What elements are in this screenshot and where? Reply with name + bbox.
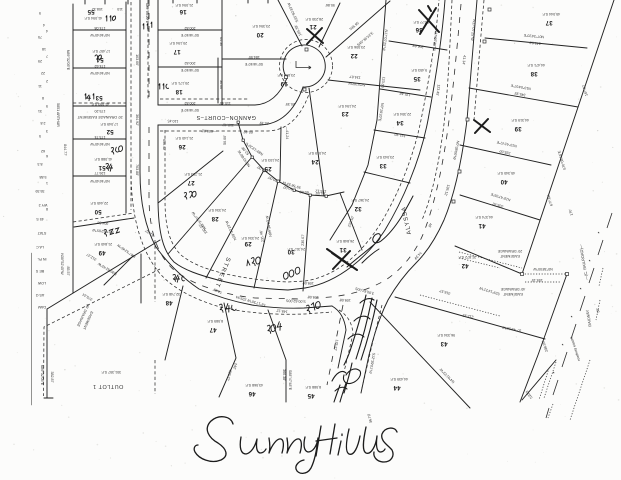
svg-text:S7°45'16"W: S7°45'16"W (501, 325, 521, 332)
svg-text:21,094 S.F.: 21,094 S.F. (175, 3, 193, 7)
svg-text:N0°46'40"W: N0°46'40"W (90, 71, 110, 75)
svg-text:N0°46'40"W: N0°46'40"W (90, 142, 110, 146)
svg-text:110.45: 110.45 (167, 119, 178, 124)
svg-text:5851 ARTHUR: 5851 ARTHUR (56, 103, 60, 127)
svg-text:170': 170' (568, 208, 574, 216)
svg-text:20' DRAINAGE: 20' DRAINAGE (497, 249, 522, 253)
svg-text:N30°52'45"W: N30°52'45"W (97, 261, 118, 276)
svg-text:N10°04'07"E: N10°04'07"E (510, 83, 531, 91)
svg-text:2.8: 2.8 (41, 121, 46, 125)
svg-text:LOW: LOW (37, 281, 46, 285)
svg-text:9: 9 (46, 104, 48, 108)
svg-text:335.92': 335.92' (491, 201, 504, 208)
svg-text:ALYSSA: ALYSSA (401, 205, 413, 235)
svg-text:5: 5 (39, 134, 41, 138)
svg-text:110.46': 110.46' (219, 101, 231, 105)
svg-text:5.88: 5.88 (40, 175, 47, 179)
svg-text:41,088 S.F.: 41,088 S.F. (94, 157, 112, 161)
svg-text:S0°46'40"E: S0°46'40"E (180, 108, 199, 112)
svg-text:—41,24: —41,24 (285, 127, 289, 140)
svg-text:21: 21 (309, 23, 317, 29)
svg-text:20,171 S.F.: 20,171 S.F. (171, 81, 189, 85)
svg-text:N10°47'05"E: N10°47'05"E (490, 192, 511, 202)
svg-text:85.57: 85.57 (66, 267, 70, 276)
svg-text:31: 31 (339, 246, 347, 252)
svg-text:200.82: 200.82 (185, 26, 196, 30)
svg-text:22: 22 (350, 52, 358, 58)
svg-text:360.38': 360.38' (282, 369, 286, 381)
svg-text:41: 41 (478, 222, 486, 228)
svg-text:24,334 S.F.: 24,334 S.F. (208, 208, 226, 212)
svg-text:S0°46'40"E: S0°46'40"E (180, 68, 199, 72)
svg-text:74.39': 74.39' (413, 251, 422, 261)
svg-text:17,457 S.F.: 17,457 S.F. (92, 49, 110, 53)
svg-text:27: 27 (187, 179, 195, 185)
svg-text:LA C: LA C (36, 245, 44, 249)
svg-text:EASEMENT: EASEMENT (499, 254, 520, 258)
svg-text:345.35': 345.35' (513, 91, 526, 97)
svg-text:108.32': 108.32' (91, 7, 103, 11)
svg-text:S29°14'21"W: S29°14'21"W (478, 286, 500, 296)
svg-text:24: 24 (311, 158, 319, 164)
svg-text:50.00': 50.00' (223, 135, 227, 145)
svg-text:58': 58' (595, 307, 600, 313)
svg-text:208.95': 208.95' (541, 340, 549, 353)
svg-text:39: 39 (514, 125, 522, 131)
svg-text:20,194 S.F.: 20,194 S.F. (169, 41, 187, 45)
svg-text:364.92': 364.92' (135, 114, 139, 126)
svg-text:33: 33 (379, 162, 387, 168)
svg-text:41.14': 41.14' (461, 55, 466, 65)
svg-text:52: 52 (106, 128, 114, 134)
svg-text:—(C. RAILROAD)—: —(C. RAILROAD)— (578, 244, 589, 281)
svg-text:24,334 S.F.: 24,334 S.F. (241, 236, 259, 240)
svg-text:105.39': 105.39' (294, 24, 303, 37)
svg-text:20: 20 (256, 31, 264, 37)
svg-text:382.87: 382.87 (50, 372, 54, 383)
svg-text:20.39': 20.39' (259, 121, 269, 126)
svg-text:53°17'30"W 229.94: 53°17'30"W 229.94 (235, 295, 266, 307)
svg-text:74.39': 74.39' (212, 287, 223, 295)
svg-text:60.46': 60.46' (243, 130, 253, 135)
svg-text:677.61': 677.61' (546, 194, 553, 207)
svg-text:24,019 S.F.: 24,019 S.F. (308, 151, 326, 155)
svg-text:126.77: 126.77 (95, 171, 106, 175)
svg-text:IN PL: IN PL (38, 257, 47, 261)
svg-text:N89°32'05"E: N89°32'05"E (40, 365, 44, 386)
svg-text:RAILWAY: RAILWAY (585, 309, 593, 327)
svg-text:GANNON–COURT–S: GANNON–COURT–S (196, 114, 256, 120)
svg-text:9: 9 (39, 11, 41, 15)
svg-text:230.07': 230.07' (301, 234, 305, 246)
svg-text:173.74: 173.74 (95, 135, 106, 139)
svg-text:42: 42 (461, 262, 469, 268)
svg-text:36.00': 36.00' (219, 80, 223, 90)
svg-text:45,044 S.F.: 45,044 S.F. (542, 12, 560, 16)
svg-text:43: 43 (440, 340, 448, 346)
svg-text:60.00': 60.00' (299, 190, 309, 195)
svg-text:24,317 S.F.: 24,317 S.F. (287, 247, 305, 251)
svg-text:379.24: 379.24 (82, 292, 93, 301)
svg-text:—110.46': —110.46' (222, 123, 238, 128)
svg-text:32: 32 (354, 205, 362, 211)
svg-text:45 S: 45 S (36, 217, 44, 221)
svg-text:24,194 S.F.: 24,194 S.F. (338, 104, 356, 108)
svg-text:1: 1 (46, 181, 48, 185)
svg-text:29: 29 (38, 59, 42, 63)
svg-text:N07°34'20"E: N07°34'20"E (523, 33, 544, 39)
svg-text:N4°01'23"W: N4°01'23"W (439, 367, 456, 384)
svg-text:49: 49 (98, 249, 106, 255)
svg-text:51: 51 (98, 164, 106, 170)
svg-text:9,453 S.F.: 9,453 S.F. (411, 68, 427, 72)
svg-text:N0°46'40"W: N0°46'40"W (90, 33, 110, 37)
svg-text:20' DRAINAGE EASEMENT: 20' DRAINAGE EASEMENT (77, 115, 123, 119)
svg-text:24,367 S.F.: 24,367 S.F. (351, 198, 369, 202)
svg-text:7: 7 (46, 54, 48, 58)
svg-text:343.91': 343.91' (529, 40, 541, 45)
svg-text:41,093 S.F.: 41,093 S.F. (91, 102, 109, 106)
svg-text:35: 35 (413, 75, 421, 81)
svg-text:BE S: BE S (35, 269, 44, 273)
svg-text:545.95: 545.95 (349, 21, 360, 31)
svg-text:123.45': 123.45' (435, 84, 440, 96)
svg-text:N30°52'45"W: N30°52'45"W (60, 253, 64, 275)
svg-text:N17°07'25"W: N17°07'25"W (470, 19, 476, 41)
svg-text:8.3: 8.3 (38, 162, 43, 166)
svg-text:174.08: 174.08 (95, 26, 106, 30)
svg-text:AS G: AS G (36, 293, 45, 297)
svg-text:21,140 S.F.: 21,140 S.F. (175, 136, 193, 140)
svg-text:26: 26 (178, 143, 186, 149)
svg-text:103.00': 103.00' (135, 54, 139, 66)
svg-text:EASEMENT: EASEMENT (502, 292, 523, 296)
svg-text:OUTLOT 1: OUTLOT 1 (93, 383, 124, 389)
svg-text:136.12': 136.12' (443, 184, 450, 197)
svg-text:38: 38 (530, 70, 538, 76)
svg-text:200.82: 200.82 (185, 101, 196, 105)
svg-text:N89°13'20"E: N89°13'20"E (145, 3, 149, 24)
svg-text:—600.82': —600.82' (201, 129, 217, 134)
svg-text:46: 46 (248, 390, 256, 396)
svg-text:28: 28 (211, 215, 219, 221)
svg-text:175.20: 175.20 (95, 109, 106, 113)
svg-text:N0°38'00"W: N0°38'00"W (452, 140, 460, 160)
svg-text:433.27': 433.27' (225, 369, 232, 382)
svg-text:S70°08'15"E: S70°08'15"E (557, 149, 567, 170)
svg-text:75: 75 (38, 35, 42, 39)
svg-text:N10°41'47"E: N10°41'47"E (496, 140, 517, 148)
svg-text:50: 50 (94, 208, 102, 214)
svg-text:20.39': 20.39' (285, 102, 295, 106)
svg-text:4: 4 (46, 29, 48, 33)
svg-text:304.58: 304.58 (97, 220, 108, 225)
svg-text:26,848 S.F.: 26,848 S.F. (336, 239, 354, 243)
svg-text:151.30': 151.30' (393, 132, 406, 138)
svg-text:STAT: STAT (37, 231, 46, 235)
svg-text:18: 18 (175, 88, 183, 94)
svg-text:roadway easem.: roadway easem. (569, 335, 581, 361)
svg-text:109.08': 109.08' (339, 298, 351, 303)
svg-text:110: 110 (117, 7, 123, 11)
svg-text:200.82: 200.82 (185, 61, 196, 65)
svg-text:40: 40 (500, 178, 508, 184)
svg-text:N89°32'05"E: N89°32'05"E (66, 50, 70, 71)
svg-text:312.27: 312.27 (86, 252, 97, 261)
svg-text:109.08': 109.08' (307, 295, 319, 300)
svg-text:134.87': 134.87' (349, 74, 361, 79)
svg-text:45: 45 (307, 392, 315, 398)
svg-text:N47°52'45"W: N47°52'45"W (116, 243, 136, 259)
svg-text:44,471 S.F.: 44,471 S.F. (527, 63, 545, 67)
svg-text:60.00': 60.00' (315, 191, 325, 195)
svg-text:44,439 S.F.: 44,439 S.F. (390, 377, 408, 381)
svg-text:8: 8 (42, 96, 44, 100)
svg-text:47: 47 (209, 326, 217, 332)
svg-text:232.10': 232.10' (347, 215, 355, 228)
svg-text:N0°38'00"W: N0°38'00"W (533, 267, 553, 271)
svg-text:184.50': 184.50' (248, 55, 260, 59)
svg-text:844.77': 844.77' (63, 144, 67, 156)
svg-text:45,340 S.F.: 45,340 S.F. (497, 171, 515, 175)
svg-text:S88°47'48"E: S88°47'48"E (288, 370, 292, 391)
svg-text:8,588 S.F.: 8,588 S.F. (305, 385, 321, 389)
svg-text:34: 34 (396, 119, 404, 125)
svg-text:90.86': 90.86' (325, 3, 335, 7)
svg-text:242': 242' (232, 363, 238, 371)
svg-text:S40°36'33"E: S40°36'33"E (356, 31, 374, 47)
svg-text:44,374 S.F.: 44,374 S.F. (475, 215, 493, 219)
svg-text:46': 46' (427, 222, 432, 228)
svg-text:22,304 S.F.: 22,304 S.F. (393, 112, 411, 116)
svg-text:132.27': 132.27' (333, 339, 339, 352)
svg-text:21,793 S.F.: 21,793 S.F. (184, 172, 202, 176)
svg-text:3: 3 (46, 129, 48, 133)
svg-text:36.79': 36.79' (367, 413, 373, 424)
svg-text:44: 44 (393, 384, 401, 390)
svg-text:23,006 S.F.: 23,006 S.F. (347, 45, 365, 49)
svg-text:N0°46'40"W: N0°46'40"W (90, 179, 110, 183)
svg-text:109.09': 109.09' (302, 281, 314, 286)
svg-text:S0°46'40"E: S0°46'40"E (180, 33, 199, 37)
svg-text:41,094 S.F.: 41,094 S.F. (84, 16, 102, 20)
svg-text:96,334 S.F.: 96,334 S.F. (437, 333, 455, 337)
svg-text:28,230 S.F.: 28,230 S.F. (305, 17, 323, 21)
svg-text:17,049 S.F.: 17,049 S.F. (100, 122, 118, 126)
svg-text:316.57': 316.57' (438, 288, 451, 295)
svg-text:WY 2: WY 2 (39, 203, 48, 207)
svg-text:18: 18 (42, 47, 46, 51)
svg-text:123.00: 123.00 (380, 76, 386, 87)
svg-text:206.68': 206.68' (411, 43, 423, 49)
svg-text:57°5'30"W: 57°5'30"W (348, 81, 366, 87)
svg-text:53: 53 (95, 94, 103, 100)
svg-text:62: 62 (41, 149, 45, 153)
svg-text:3,00,62,00S: 3,00,62,00S (354, 286, 374, 295)
svg-text:174.62: 174.62 (95, 64, 106, 68)
svg-text:DAM: DAM (38, 305, 46, 309)
svg-text:4: 4 (43, 23, 45, 27)
svg-text:21,840 S.F.: 21,840 S.F. (94, 242, 112, 246)
svg-text:23,043 S.F.: 23,043 S.F. (376, 155, 394, 159)
svg-text:8: 8 (46, 207, 48, 211)
svg-text:22: 22 (41, 71, 45, 75)
svg-text:N87°52'05"W: N87°52'05"W (91, 228, 113, 234)
svg-text:6: 6 (46, 154, 48, 158)
svg-text:650.42': 650.42' (162, 139, 166, 151)
svg-text:35.39: 35.39 (36, 189, 45, 193)
svg-text:32,748 S.F.: 32,748 S.F. (162, 292, 180, 296)
svg-text:40' DRAINAGE: 40' DRAINAGE (500, 287, 525, 291)
svg-text:520.3: 520.3 (525, 390, 533, 400)
svg-text:16: 16 (179, 8, 187, 14)
svg-text:44,319 S.F.: 44,319 S.F. (511, 118, 529, 122)
svg-text:23: 23 (341, 110, 349, 116)
svg-text:301,357 S.F.: 301,357 S.F. (101, 370, 121, 374)
svg-text:17: 17 (173, 48, 181, 54)
svg-text:703.88': 703.88' (135, 164, 139, 176)
svg-text:22,445 S.F.: 22,445 S.F. (90, 201, 108, 205)
svg-text:23,394 S.F.: 23,394 S.F. (252, 24, 270, 28)
svg-text:212.35': 212.35' (461, 313, 474, 319)
svg-text:2: 2 (46, 79, 48, 83)
svg-text:31,872 S.F.: 31,872 S.F. (458, 255, 476, 259)
svg-text:148.12': 148.12' (276, 308, 288, 313)
svg-text:S0°46'40"E: S0°46'40"E (244, 62, 263, 66)
svg-text:175.46': 175.46' (398, 91, 410, 97)
svg-text:11: 11 (38, 84, 42, 88)
svg-text:64.30': 64.30' (219, 37, 223, 47)
svg-text:8,589 S.F.: 8,589 S.F. (207, 319, 223, 323)
svg-text:31: 31 (38, 109, 42, 113)
svg-text:43,568 S.F.: 43,568 S.F. (245, 383, 263, 387)
svg-text:48: 48 (165, 299, 173, 305)
svg-text:231.46': 231.46' (259, 230, 265, 243)
svg-text:19: 19 (280, 80, 288, 86)
svg-text:S,00,62,00S: S,00,62,00S (285, 298, 306, 303)
svg-text:STREET: STREET (213, 256, 231, 289)
svg-text:159.15': 159.15' (531, 278, 543, 282)
svg-text:23,894 S.F.: 23,894 S.F. (277, 73, 295, 77)
svg-text:37: 37 (545, 19, 553, 25)
svg-text:24,103 S.F.: 24,103 S.F. (261, 158, 279, 162)
